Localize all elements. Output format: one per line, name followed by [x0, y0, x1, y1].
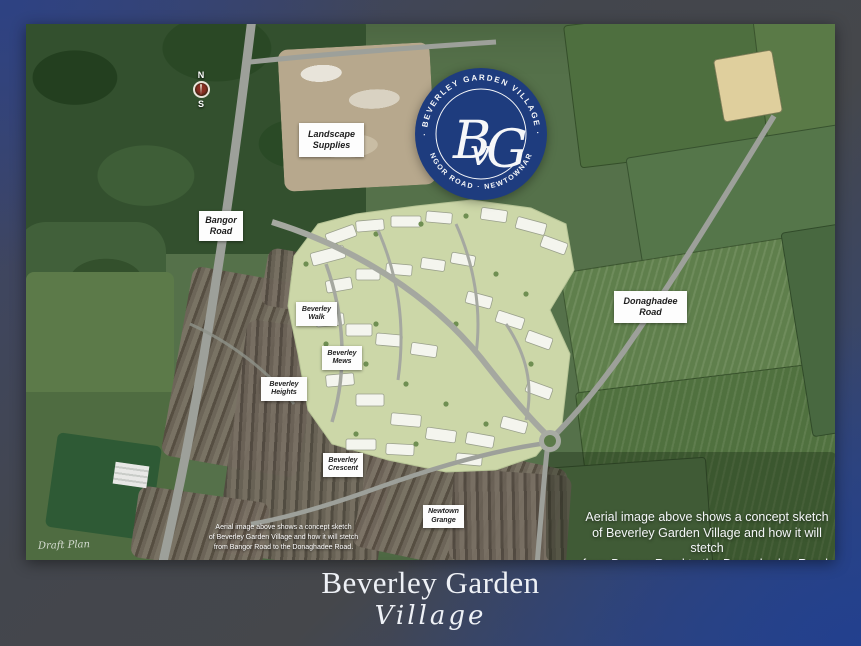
compass-south-label: S — [198, 99, 204, 109]
greenhouse — [113, 462, 150, 489]
caption-line: from Bangor Road to the Donaghadee Road. — [574, 557, 835, 561]
sketch-tree — [528, 361, 533, 366]
label-line: Beverley — [269, 381, 298, 389]
map-label-beverley-crescent: Beverley Crescent — [323, 453, 363, 477]
label-line: Grange — [431, 517, 456, 525]
brochure-page: N S · BEVERLEY GARDEN VILLAGE · BANGOR R… — [0, 0, 861, 646]
sketch-building — [480, 207, 507, 223]
caption-line: of Beverley Garden Village and how it wi… — [574, 526, 835, 557]
sketch-building — [525, 330, 554, 350]
wordmark-primary: Beverley Garden — [0, 566, 861, 600]
sketch-building — [391, 216, 421, 227]
sketch-loop-road — [456, 224, 478, 354]
map-label-landscape-supplies: Landscape Supplies — [299, 123, 364, 157]
sketch-tree — [453, 321, 458, 326]
sketch-tree — [443, 401, 448, 406]
wordmark-script: Village — [0, 601, 861, 631]
caption-line: Aerial image above shows a concept sketc… — [574, 510, 835, 526]
label-line: Mews — [332, 358, 351, 366]
map-label-beverley-mews: Beverley Mews — [322, 346, 362, 370]
sketch-tree — [373, 231, 378, 236]
compass-dial-icon — [193, 81, 210, 98]
map-label-beverley-heights: Beverley Heights — [261, 377, 307, 401]
map-label-beverley-walk: Beverley Walk — [296, 302, 337, 326]
compass-needle — [200, 84, 202, 95]
beverley-garden-village-logo: · BEVERLEY GARDEN VILLAGE · BANGOR ROAD … — [415, 68, 547, 200]
sketch-building — [525, 380, 554, 400]
sketch-tree — [418, 221, 423, 226]
sketch-building — [450, 252, 476, 267]
label-line: Crescent — [328, 465, 358, 473]
caption-line: Aerial image above shows a concept sketc… — [186, 523, 381, 533]
label-line: Heights — [271, 389, 297, 397]
caption-small: Aerial image above shows a concept sketc… — [186, 523, 381, 553]
label-line: Beverley — [302, 306, 331, 314]
logo-monogram-g: G — [486, 120, 528, 180]
sketch-building — [426, 211, 453, 224]
caption-line: of Beverley Garden Village and how it wi… — [186, 533, 381, 543]
compass: N S — [190, 70, 212, 109]
label-line: Landscape — [308, 129, 355, 140]
sketch-building — [515, 216, 547, 235]
label-line: Beverley — [327, 350, 356, 358]
footer-wordmark: Beverley Garden Village — [0, 566, 861, 631]
aerial-photo: N S · BEVERLEY GARDEN VILLAGE · BANGOR R… — [26, 24, 835, 560]
sketch-building — [325, 277, 353, 293]
map-label-newtown-grange: Newtown Grange — [423, 505, 464, 528]
sketch-building — [465, 291, 493, 309]
label-line: Road — [210, 226, 233, 237]
sketch-building — [465, 432, 495, 449]
landscape-supplies-yard — [277, 42, 436, 192]
sketch-tree — [403, 381, 408, 386]
label-line: Bangor — [205, 215, 237, 226]
label-line: Walk — [308, 314, 324, 322]
map-label-donaghadee-road: Donaghadee Road — [614, 291, 687, 323]
field-patch — [713, 49, 783, 122]
sketch-building — [410, 342, 437, 358]
caption-large: Aerial image above shows a concept sketc… — [574, 510, 835, 560]
compass-north-label: N — [198, 70, 205, 80]
sketch-building — [540, 235, 569, 255]
label-line: Supplies — [313, 140, 351, 151]
sketch-tree — [493, 271, 498, 276]
label-line: Beverley — [328, 457, 357, 465]
sketch-building — [356, 269, 380, 280]
sketch-tree — [523, 291, 528, 296]
roundabout — [542, 433, 559, 450]
sketch-tree — [483, 421, 488, 426]
label-line: Road — [639, 307, 662, 318]
field-patch — [26, 272, 174, 404]
draft-plan-note: Draft Plan — [38, 539, 90, 552]
sketch-loop-road — [506, 324, 529, 420]
map-label-bangor-road: Bangor Road — [199, 211, 243, 241]
sketch-tree — [373, 321, 378, 326]
caption-line: from Bangor Road to the Donaghadee Road. — [186, 543, 381, 553]
sketch-building — [495, 310, 525, 330]
label-line: Donaghadee — [623, 296, 677, 307]
sketch-building — [420, 257, 445, 271]
sketch-building — [386, 263, 413, 276]
label-line: Newtown — [428, 508, 459, 516]
sketch-building — [500, 416, 528, 434]
sketch-tree — [463, 213, 468, 218]
